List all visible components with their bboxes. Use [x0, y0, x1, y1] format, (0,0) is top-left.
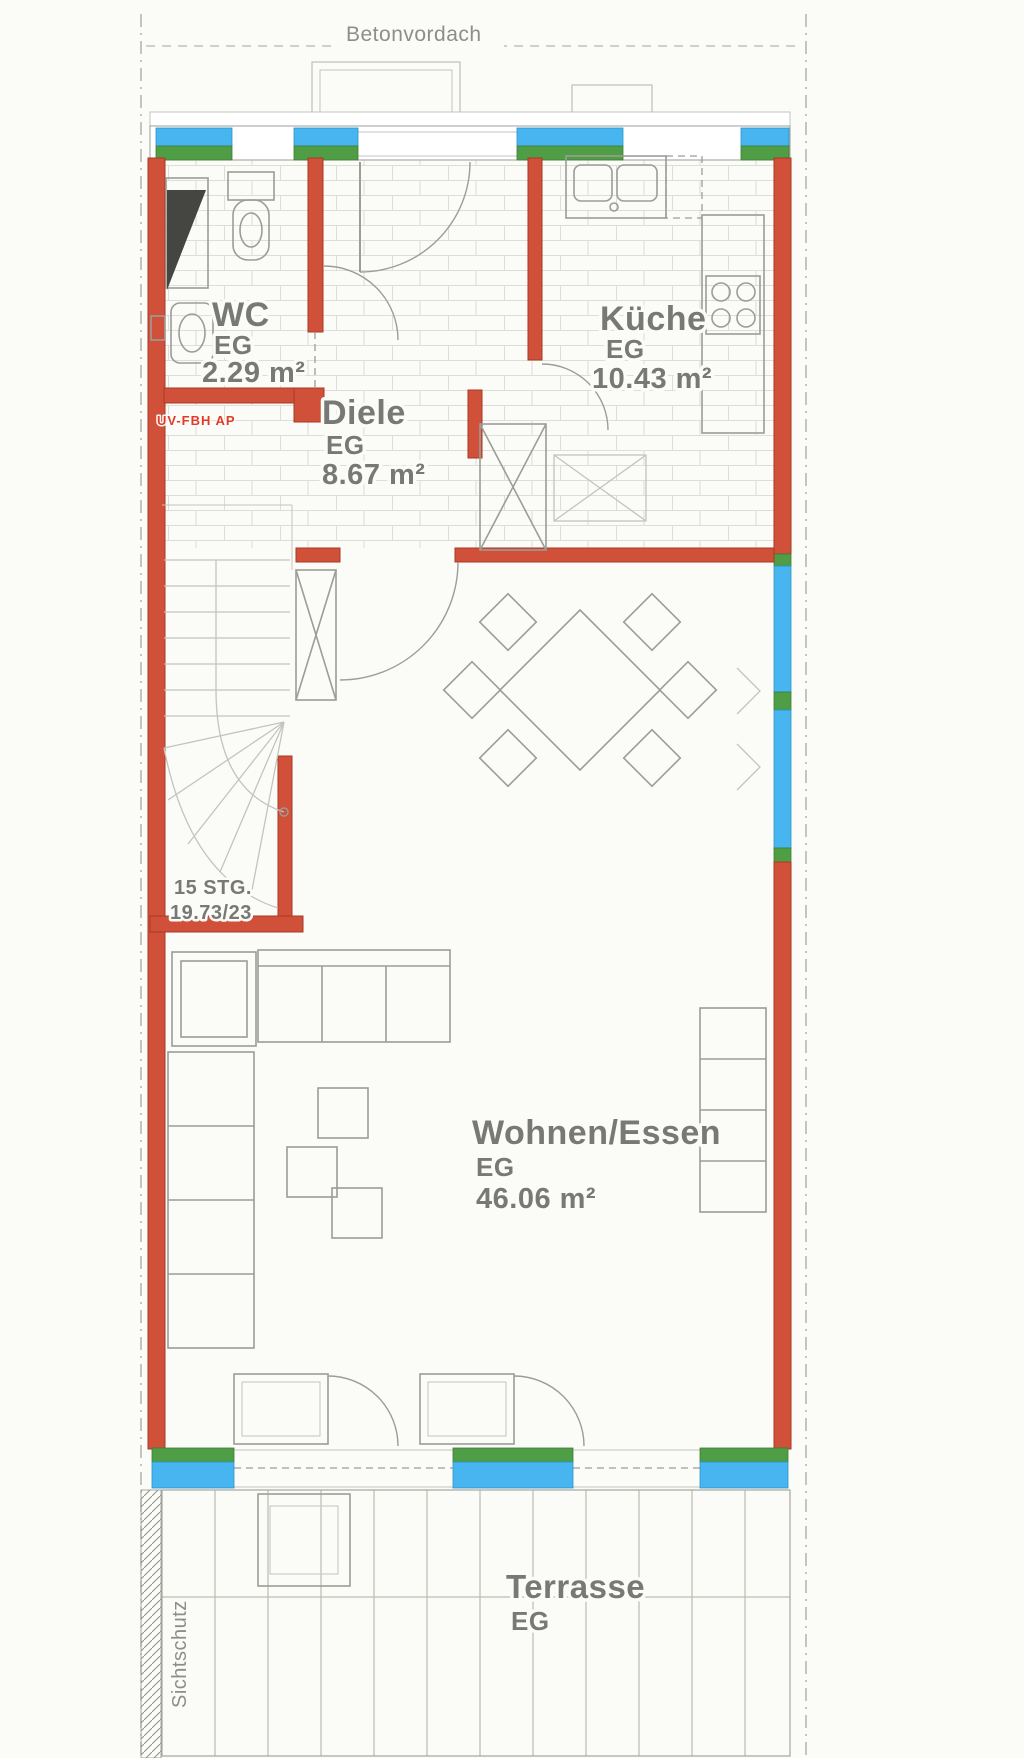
room-label-kueche: Küche	[600, 300, 706, 338]
dining-set	[444, 594, 760, 790]
living-door-arc	[340, 562, 458, 680]
room-area-kueche: 10.43 m²	[592, 363, 712, 395]
room-area-wc: 2.29 m²	[202, 357, 305, 389]
window-blue	[294, 128, 358, 146]
room-label-wc: WC	[212, 296, 270, 334]
dining-chair	[480, 594, 537, 651]
dining-chair	[624, 730, 681, 787]
coffee-table	[318, 1088, 368, 1138]
door-arc	[514, 1376, 584, 1446]
sill-green	[774, 554, 791, 566]
window-blue	[152, 1462, 234, 1488]
sill-green	[156, 146, 232, 160]
stair-treads	[164, 560, 290, 908]
sill-green	[774, 692, 791, 710]
right-exterior-wall	[774, 158, 791, 1449]
room-level-wc: EG	[214, 330, 253, 360]
door-panel	[420, 1374, 514, 1444]
stair-count: 15 STG.	[174, 877, 252, 899]
window-blue	[774, 710, 791, 848]
room-label-terrasse: Terrasse	[506, 1568, 645, 1605]
staircase	[162, 505, 336, 908]
dining-chair	[480, 730, 537, 787]
terrace-doors	[234, 1374, 584, 1446]
privacy-screen-hatch	[141, 1490, 161, 1758]
wc-right-wall	[308, 158, 323, 332]
terrace-outline	[162, 1490, 790, 1756]
window-blue	[517, 128, 623, 146]
sill-green	[453, 1448, 573, 1462]
room-level-kueche: EG	[606, 334, 645, 364]
sideboard	[700, 1008, 766, 1212]
room-level-terrasse: EG	[511, 1606, 550, 1636]
door-panel	[234, 1374, 328, 1444]
terrace	[141, 1490, 790, 1758]
stair-shaft	[296, 570, 336, 700]
deck-boards	[162, 1490, 790, 1756]
room-area-diele: 8.67 m²	[322, 459, 425, 491]
sofa-left-chaise	[168, 1052, 254, 1348]
room-label-wohnen: Wohnen/Essen	[472, 1114, 721, 1152]
sill-green	[152, 1448, 234, 1462]
window-blue	[741, 128, 789, 146]
window-blue	[774, 566, 791, 692]
room-level-wohnen: EG	[476, 1152, 515, 1182]
window-blue	[453, 1462, 573, 1488]
dining-chair	[624, 594, 681, 651]
terrace-table	[258, 1494, 350, 1586]
stair-dimensions: 19.73/23	[170, 902, 252, 924]
privacy-screen-label: Sichtschutz	[169, 1600, 191, 1708]
mid-wall-stub	[296, 548, 340, 562]
room-label-diele: Diele	[322, 394, 406, 432]
dining-chair	[444, 662, 501, 719]
sill-green	[294, 146, 358, 160]
kitchen-partition-wall	[528, 158, 542, 360]
window-blue	[700, 1462, 788, 1488]
floorplan-svg: Betonvordach WC EG 2.29 m² UV-FBH AP Küc…	[0, 0, 1024, 1758]
canopy-label: Betonvordach	[346, 23, 482, 46]
window-blue	[156, 128, 232, 146]
wc-wall-jamb	[294, 388, 324, 422]
dining-chair	[660, 662, 717, 719]
sofa-top	[258, 950, 450, 1042]
stair-walk-line	[216, 560, 288, 816]
floorplan-page: Betonvordach WC EG 2.29 m² UV-FBH AP Küc…	[0, 0, 1024, 1758]
room-area-wohnen: 46.06 m²	[476, 1183, 596, 1215]
room-level-diele: EG	[326, 430, 365, 460]
wall-decor	[737, 668, 760, 790]
sofa-group	[168, 950, 450, 1348]
coffee-table	[287, 1147, 337, 1197]
bottom-exterior-wall	[152, 1448, 788, 1488]
sill-green	[774, 848, 791, 862]
door-arc	[328, 1376, 398, 1446]
tiled-floor	[164, 158, 774, 548]
stair-right-wall	[278, 756, 292, 918]
top-exterior-wall	[150, 112, 790, 160]
coffee-table	[332, 1188, 382, 1238]
sill-green	[700, 1448, 788, 1462]
heating-note: UV-FBH AP	[157, 413, 236, 428]
armchair	[172, 952, 256, 1046]
left-exterior-wall	[148, 158, 165, 1449]
wc-bottom-wall	[164, 388, 294, 403]
